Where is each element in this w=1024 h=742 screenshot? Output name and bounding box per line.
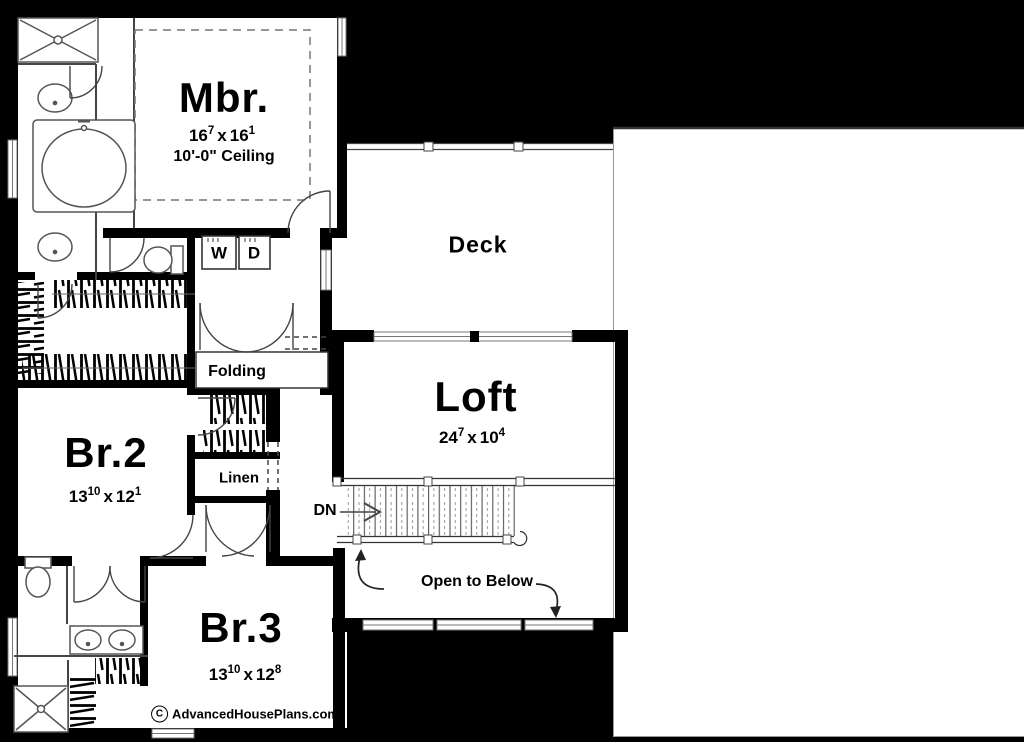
toilet-fixture — [25, 557, 51, 597]
bathtub-fixture — [33, 120, 135, 212]
washer-label: W — [211, 245, 227, 262]
lower-roof-area — [613, 127, 1024, 737]
loft-dimensions: 247x104 — [439, 428, 505, 446]
closet-rod-hatch — [203, 430, 265, 455]
open-to-below-label: Open to Below — [421, 574, 533, 590]
closet-rod-hatch — [95, 658, 143, 684]
dryer-label: D — [248, 245, 260, 262]
mbr-ceiling-note: 10'-0" Ceiling — [173, 149, 274, 165]
sink-fixture — [38, 233, 72, 261]
shower-fixture — [14, 686, 68, 732]
window — [338, 18, 346, 56]
dn-label: DN — [313, 503, 336, 519]
closet-rod-hatch — [70, 678, 96, 728]
vanity-fixture — [70, 626, 143, 654]
window — [152, 729, 194, 738]
toilet-fixture — [144, 246, 183, 274]
watermark-text: AdvancedHousePlans.com — [172, 708, 339, 721]
stair-treads — [346, 486, 518, 536]
br3-label: Br.3 — [199, 607, 282, 649]
shower-fixture — [18, 18, 98, 62]
floor-plan-drawing — [0, 0, 1024, 742]
loft-label: Loft — [434, 376, 517, 418]
copyright-icon: C — [151, 706, 168, 723]
sink-fixture — [38, 84, 72, 112]
linen-label: Linen — [219, 471, 259, 486]
loft-deck-window-band — [374, 331, 572, 342]
window — [321, 250, 331, 290]
folding-label: Folding — [208, 364, 266, 380]
window — [8, 140, 17, 198]
loft-south-windows — [363, 620, 593, 630]
br2-dimensions: 1310x121 — [69, 487, 142, 505]
mbr-label: Mbr. — [179, 77, 269, 119]
mbr-dimensions: 167x161 — [189, 126, 255, 144]
watermark: C AdvancedHousePlans.com — [151, 706, 339, 723]
floor-plan: Mbr. 167x161 10'-0" Ceiling Deck Loft 24… — [0, 0, 1024, 742]
deck-label: Deck — [449, 234, 508, 257]
closet-rod-hatch — [210, 392, 266, 424]
br3-dimensions: 1310x128 — [209, 665, 282, 683]
br2-label: Br.2 — [64, 432, 147, 474]
window — [8, 618, 17, 676]
